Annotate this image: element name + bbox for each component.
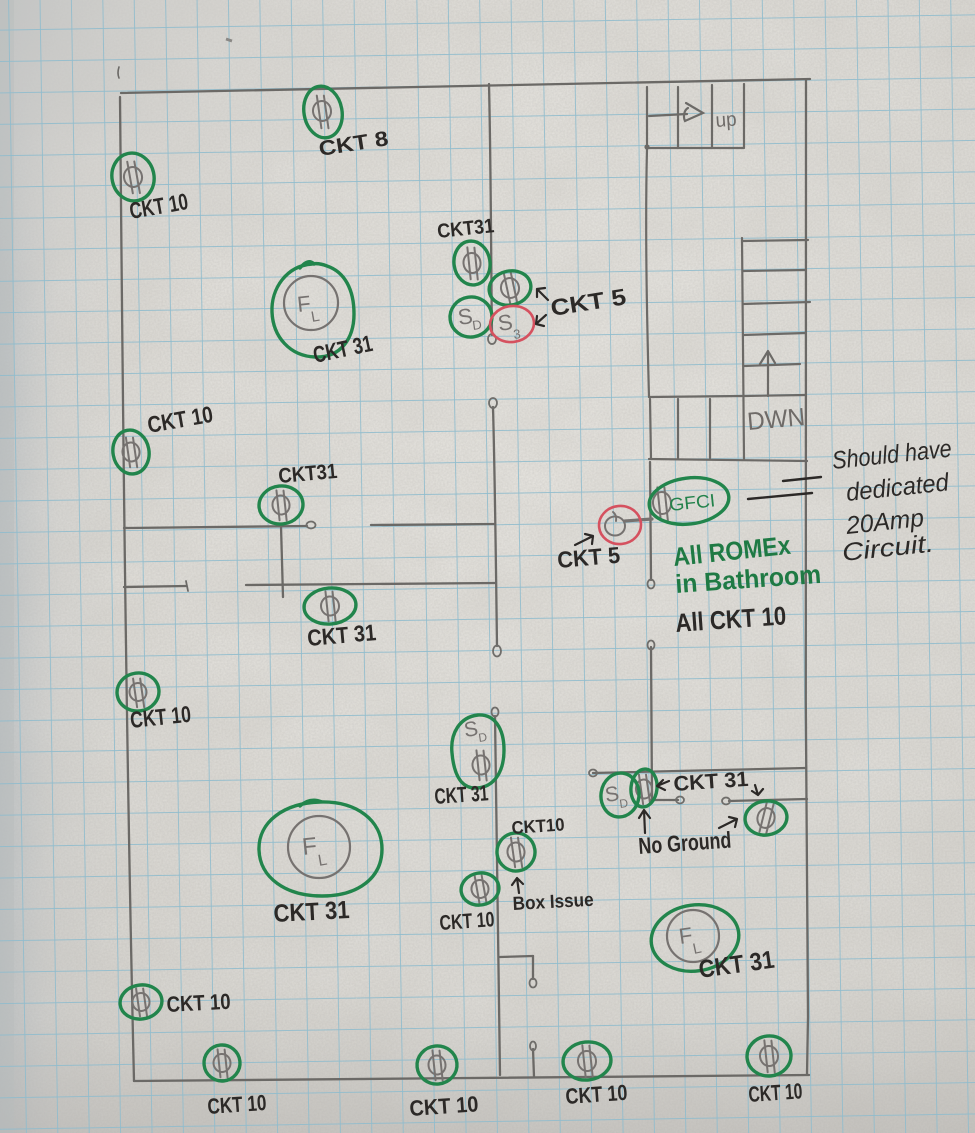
svg-text:Box Issue: Box Issue: [512, 890, 594, 915]
svg-text:F: F: [301, 833, 318, 861]
svg-text:CKT 10: CKT 10: [409, 1091, 480, 1121]
svg-text:CKT 5: CKT 5: [556, 542, 621, 573]
svg-text:CKT 31: CKT 31: [273, 896, 350, 928]
svg-text:CKT 10: CKT 10: [565, 1080, 629, 1109]
svg-text:CKT 10: CKT 10: [166, 989, 231, 1017]
svg-text:up: up: [715, 109, 737, 132]
svg-text:CKT10: CKT10: [511, 814, 565, 838]
svg-text:CKT 10: CKT 10: [439, 908, 495, 935]
svg-text:CKT 31: CKT 31: [434, 780, 490, 809]
svg-text:CKT 10: CKT 10: [207, 1090, 268, 1119]
svg-text:CKT 10: CKT 10: [748, 1078, 804, 1107]
svg-text:DWN: DWN: [746, 403, 806, 436]
